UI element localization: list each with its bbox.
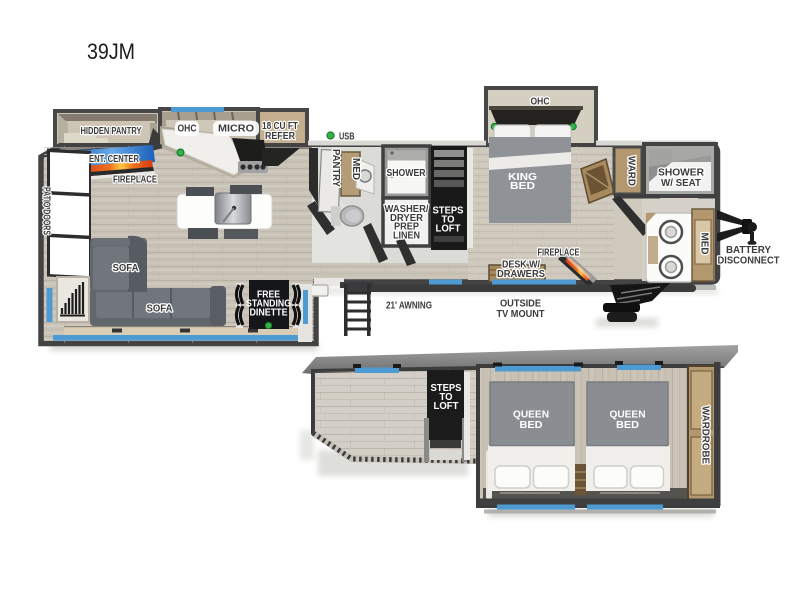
svg-text:USB: USB	[339, 132, 355, 143]
svg-text:OHC: OHC	[531, 97, 550, 108]
svg-text:BATTERY: BATTERY	[726, 245, 771, 256]
svg-text:WARD: WARD	[626, 156, 637, 186]
svg-text:QUEEN: QUEEN	[513, 410, 549, 421]
svg-text:PANTRY: PANTRY	[330, 149, 341, 187]
svg-text:PATIO DOORS: PATIO DOORS	[41, 187, 52, 235]
svg-text:QUEEN: QUEEN	[610, 410, 646, 421]
svg-text:OHC: OHC	[178, 124, 197, 135]
svg-text:SOFA: SOFA	[113, 263, 139, 274]
svg-text:BED: BED	[520, 420, 543, 431]
svg-text:FIREPLACE: FIREPLACE	[538, 248, 580, 259]
svg-text:BED: BED	[510, 181, 535, 192]
svg-text:OUTSIDE: OUTSIDE	[500, 299, 541, 310]
svg-text:REFER: REFER	[265, 131, 296, 142]
svg-text:SOFA: SOFA	[147, 304, 173, 315]
svg-text:WARDROBE: WARDROBE	[700, 406, 711, 464]
svg-text:LOFT: LOFT	[436, 224, 461, 235]
svg-text:MED: MED	[350, 158, 361, 180]
svg-text:21' AWNING: 21' AWNING	[386, 301, 432, 312]
svg-text:W/ SEAT: W/ SEAT	[661, 178, 701, 189]
svg-text:LINEN: LINEN	[393, 230, 420, 241]
svg-text:SHOWER: SHOWER	[387, 168, 427, 179]
svg-text:MICRO: MICRO	[218, 124, 254, 135]
svg-text:DISCONNECT: DISCONNECT	[718, 256, 780, 267]
svg-text:DRAWERS: DRAWERS	[497, 269, 545, 280]
svg-text:SHOWER: SHOWER	[658, 168, 705, 179]
svg-text:MED: MED	[699, 233, 710, 255]
svg-text:TV MOUNT: TV MOUNT	[497, 309, 545, 320]
svg-text:DINETTE: DINETTE	[250, 308, 288, 319]
svg-text:LOFT: LOFT	[434, 401, 459, 412]
svg-text:BED: BED	[616, 420, 639, 431]
svg-text:ENT. CENTER: ENT. CENTER	[89, 154, 140, 165]
svg-text:39JM: 39JM	[87, 39, 135, 64]
svg-text:FIREPLACE: FIREPLACE	[113, 175, 157, 186]
svg-text:HIDDEN PANTRY: HIDDEN PANTRY	[81, 126, 142, 137]
